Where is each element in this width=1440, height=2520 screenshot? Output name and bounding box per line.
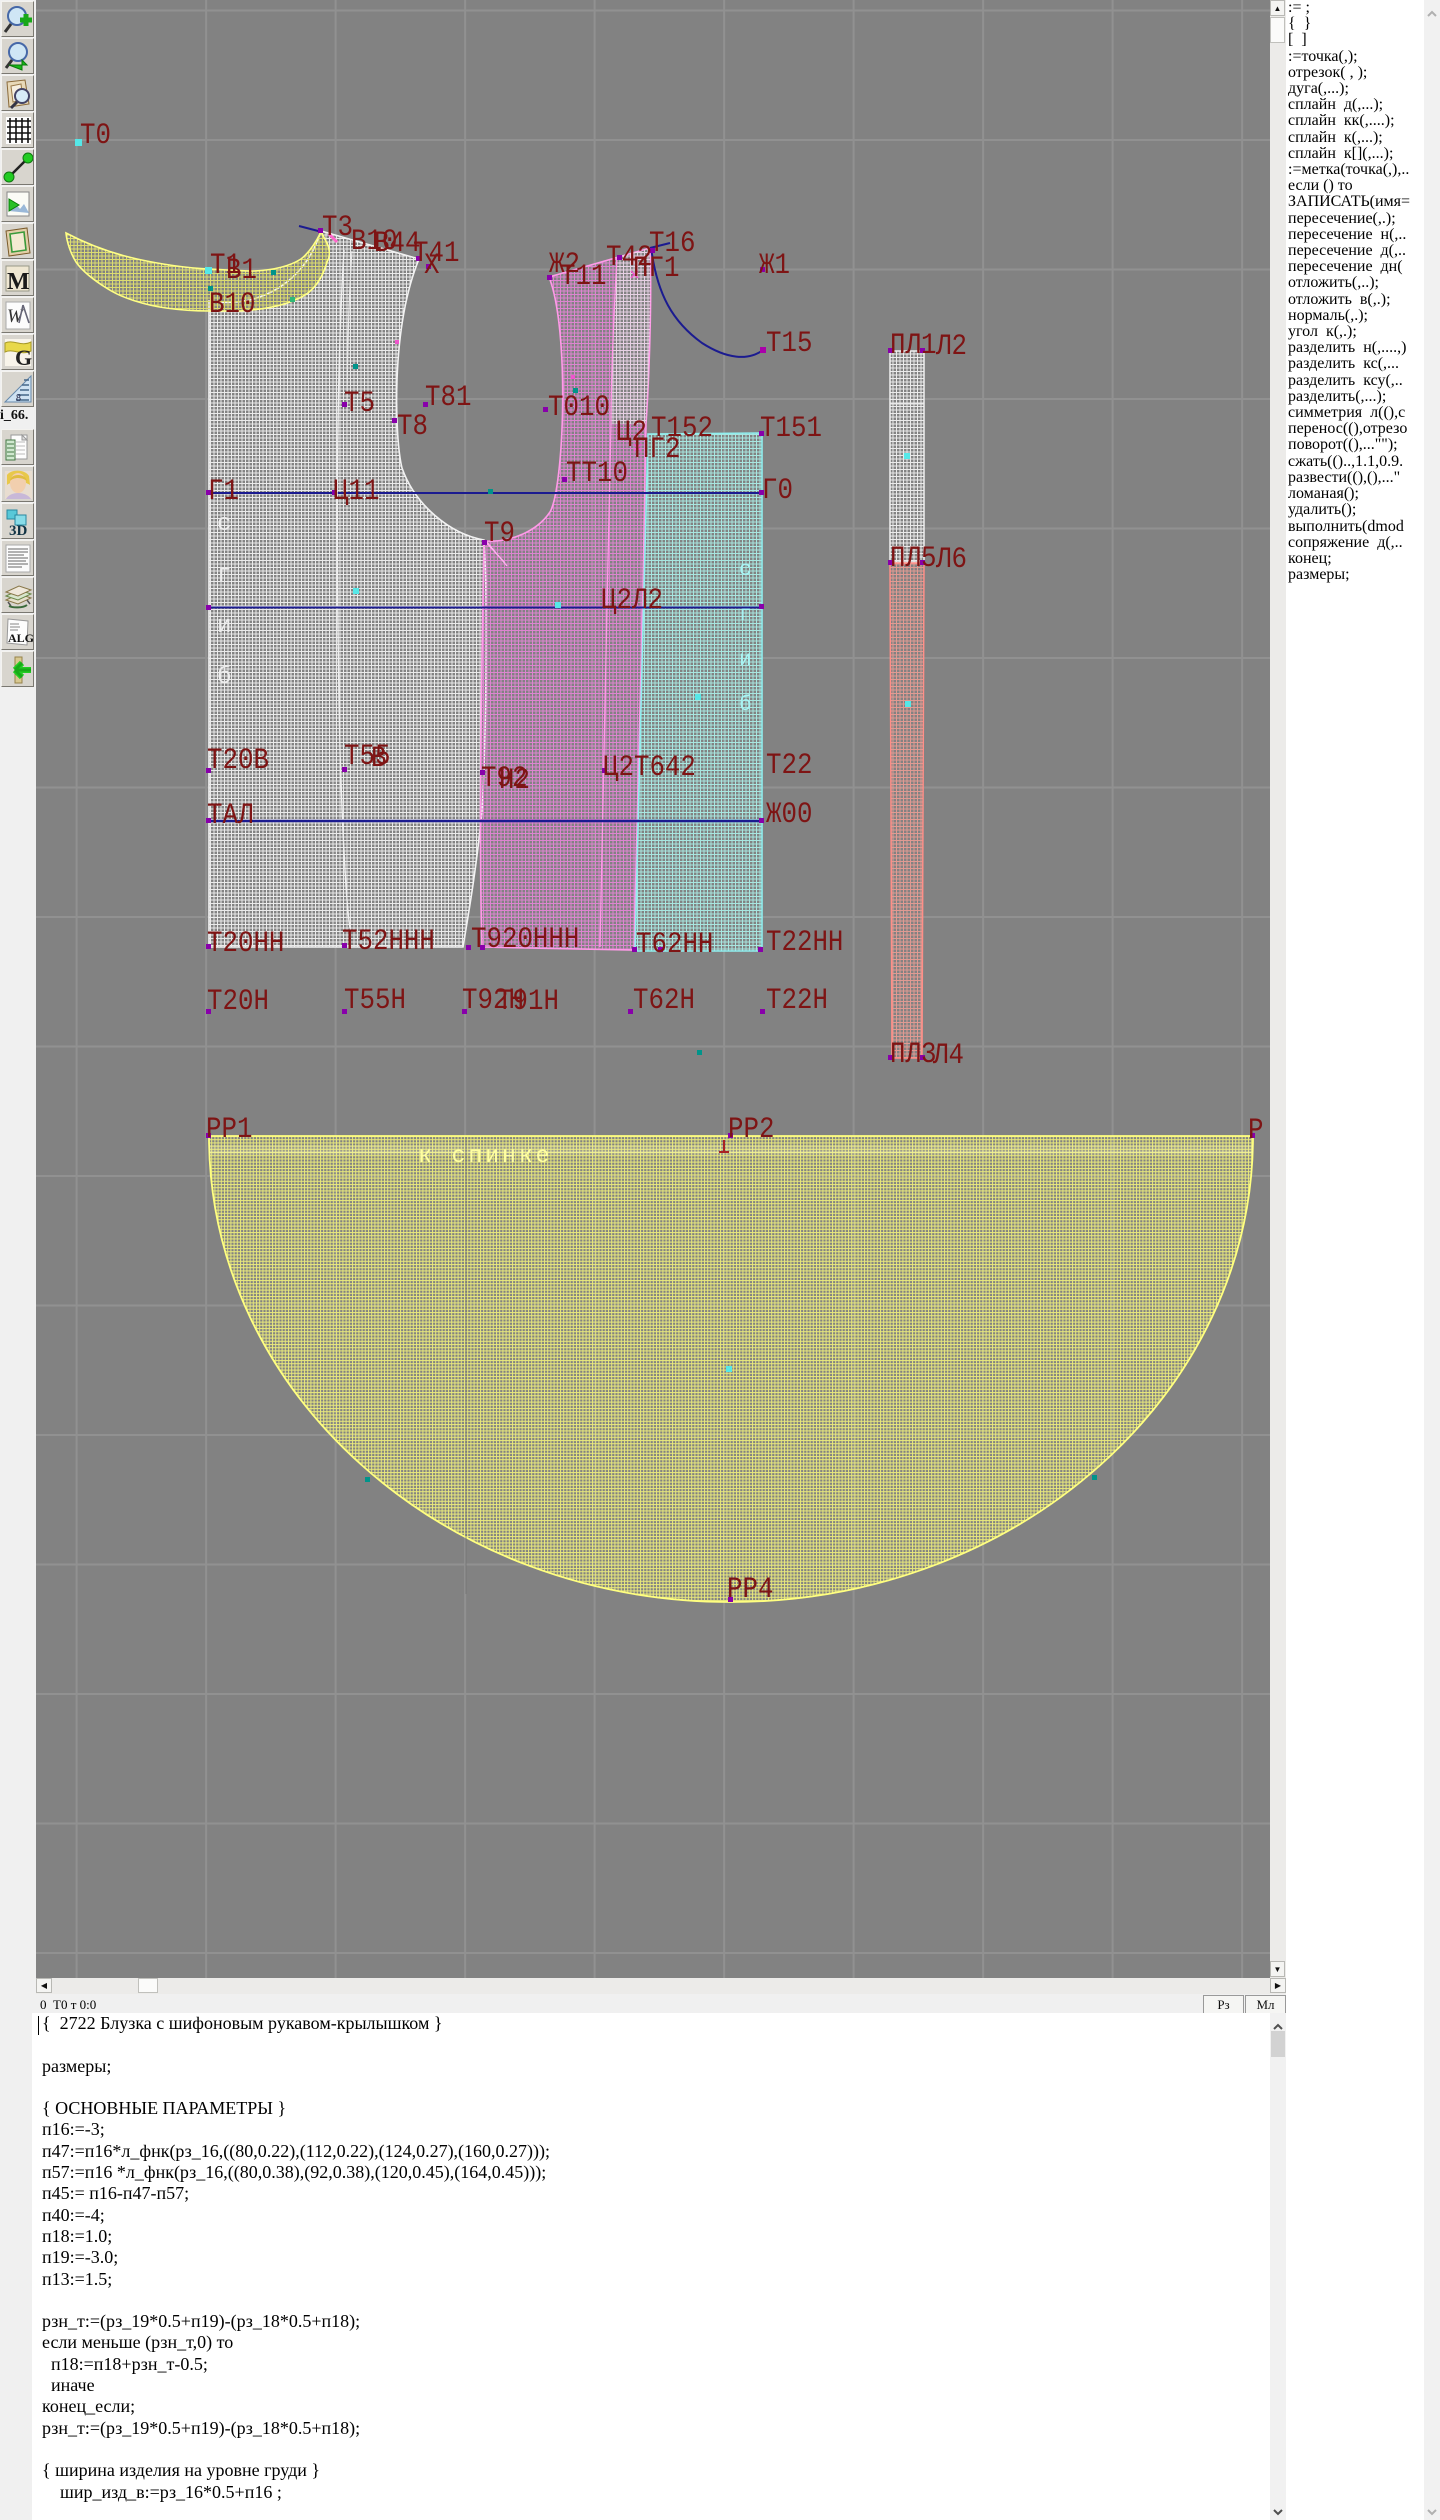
svg-text:8: 8 (16, 393, 21, 404)
svg-text:G: G (15, 345, 32, 369)
svg-text:ALG: ALG (8, 631, 33, 645)
svg-text:M: M (7, 269, 30, 295)
svg-text:3D: 3D (9, 523, 28, 538)
